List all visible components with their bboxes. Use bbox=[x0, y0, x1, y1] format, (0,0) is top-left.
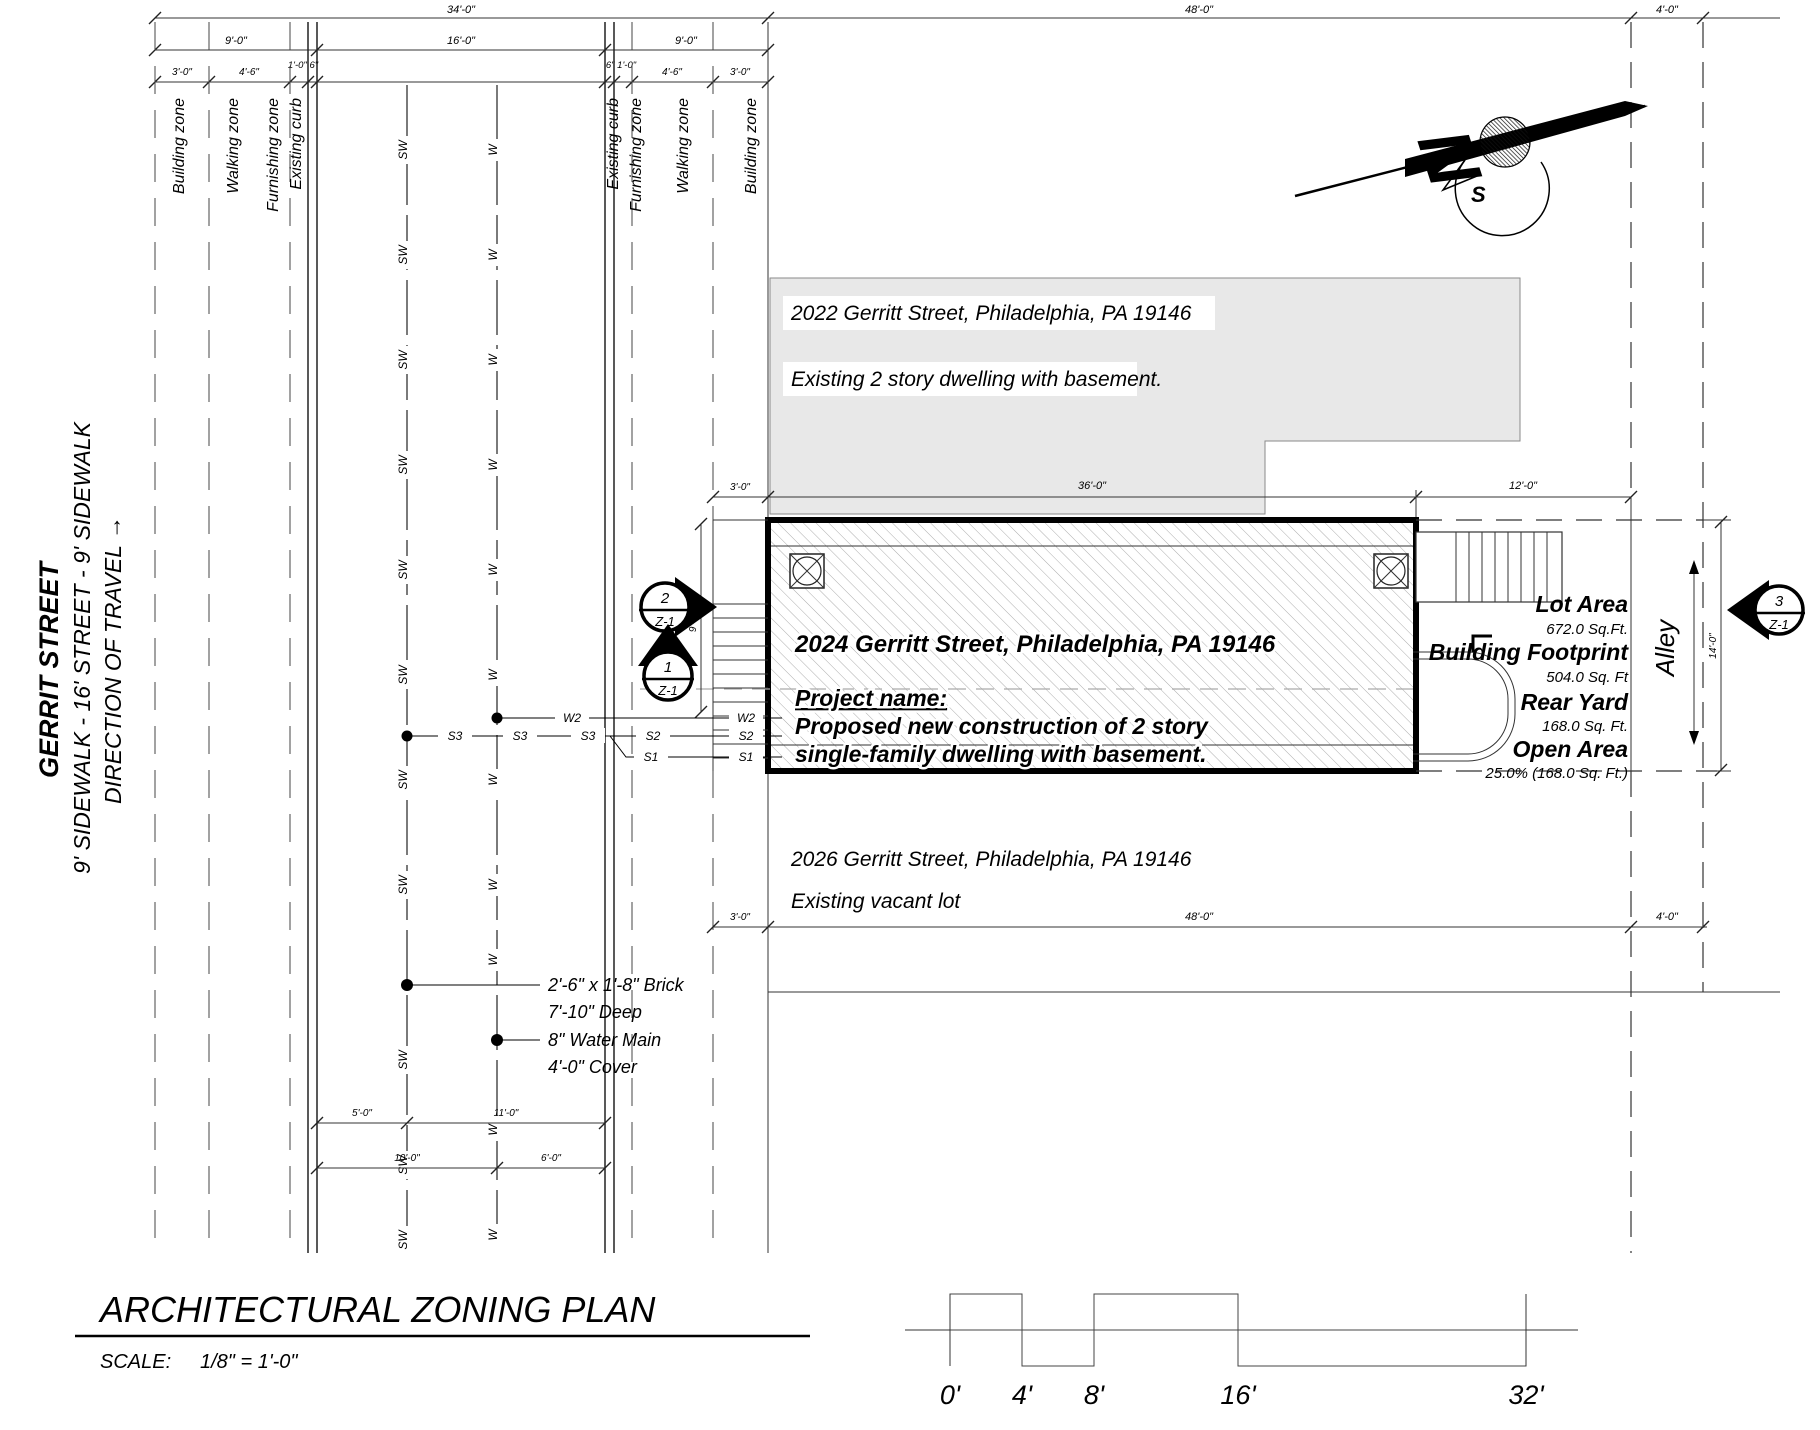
alley-label: Alley bbox=[1650, 618, 1680, 678]
zoning-plan-sheet: 34'-0" 48'-0" 4'-0" 9'-0" 16'-0" 9'-0" 3… bbox=[0, 0, 1820, 1430]
zone-label-furnishing-left: Furnishing zone bbox=[265, 98, 282, 212]
w2-label: W2 bbox=[563, 711, 581, 725]
brick-note-line2: 7'-10" Deep bbox=[548, 1002, 642, 1022]
dim-left-sidewalk: 9'-0" bbox=[225, 35, 248, 47]
water-note-line1: 8" Water Main bbox=[548, 1030, 661, 1050]
address-2022: 2022 Gerritt Street, Philadelphia, PA 19… bbox=[790, 302, 1192, 325]
scale-tick-label: 0' bbox=[940, 1380, 961, 1410]
dim-sw-to-curb: 11'-0" bbox=[494, 1108, 519, 1119]
address-2024: 2024 Gerritt Street, Philadelphia, PA 19… bbox=[794, 631, 1276, 658]
stat-value: 25.0% (168.0 Sq. Ft.) bbox=[1484, 765, 1628, 782]
column-marker-left bbox=[790, 554, 824, 588]
sewer-line: SW SW SW SW SW SW SW SW SW SW SW bbox=[396, 85, 410, 1254]
sewer-label: SW bbox=[396, 874, 410, 895]
sewer-label: SW bbox=[396, 559, 410, 580]
s1-label: S1 bbox=[644, 750, 659, 764]
arrow-down-icon bbox=[1689, 731, 1699, 745]
utility-laterals: W2 W2 S3 S3 S3 S2 S2 S1 S1 bbox=[402, 710, 783, 764]
dim-overall-lot: 48'-0" bbox=[1185, 4, 1214, 16]
project-line-1: Proposed new construction of 2 story bbox=[795, 713, 1209, 739]
dim-r-building-zone: 3'-0" bbox=[730, 67, 750, 78]
sewer-label: SW bbox=[396, 349, 410, 370]
sewer-label: SW bbox=[396, 1049, 410, 1070]
street-title: GERRIT STREET 9' SIDEWALK - 16' STREET -… bbox=[34, 420, 126, 874]
scale-tick-label: 8' bbox=[1084, 1380, 1105, 1410]
brick-sewer-note: 2'-6" x 1'-8" Brick 7'-10" Deep bbox=[401, 975, 685, 1022]
s3-label: S3 bbox=[581, 729, 596, 743]
brick-note-line1: 2'-6" x 1'-8" Brick bbox=[547, 975, 685, 995]
arrow-up-icon bbox=[1689, 560, 1699, 574]
direction-of-travel: DIRECTION OF TRAVEL → bbox=[100, 516, 126, 804]
zone-label-furnishing-right: Furnishing zone bbox=[628, 98, 645, 212]
callout-1-z1: 1 Z-1 bbox=[638, 624, 698, 700]
dim-w-to-curb: 6'-0" bbox=[541, 1153, 561, 1164]
s3-label: S3 bbox=[448, 729, 463, 743]
dim-alley-depth: 14'-0" bbox=[1708, 633, 1719, 659]
sewer-label: SW bbox=[396, 769, 410, 790]
water-note-line2: 4'-0" Cover bbox=[548, 1057, 638, 1077]
column-marker-right bbox=[1374, 554, 1408, 588]
scale-segment bbox=[1094, 1294, 1238, 1330]
street-subtitle: 9' SIDEWALK - 16' STREET - 9' SIDEWALK bbox=[69, 420, 95, 874]
dim-lot-width: 48'-0" bbox=[1185, 911, 1214, 923]
dim-alley-width: 4'-0" bbox=[1656, 4, 1679, 16]
water-label: W bbox=[486, 668, 500, 681]
water-label: W bbox=[486, 953, 500, 966]
dim-l-building-zone: 3'-0" bbox=[172, 67, 192, 78]
utility-offset-dims-row2: 10'-0" 6'-0" bbox=[311, 1153, 611, 1174]
zone-label-building-left: Building zone bbox=[171, 98, 188, 194]
scale-segment bbox=[950, 1294, 1022, 1330]
project-line-2: single-family dwelling with basement. bbox=[795, 741, 1207, 767]
lot-2026-vacant: 2026 Gerritt Street, Philadelphia, PA 19… bbox=[707, 848, 1709, 933]
dim-building-width: 36'-0" bbox=[1078, 480, 1107, 492]
zone-label-building-right: Building zone bbox=[743, 98, 760, 194]
stat-value: 168.0 Sq. Ft. bbox=[1542, 718, 1628, 735]
stat-label: Open Area bbox=[1513, 736, 1629, 762]
alley-label-group: Alley bbox=[1650, 560, 1699, 745]
zone-label-curb-left: Existing curb bbox=[288, 98, 305, 190]
graphic-scale-bar: 0' 4' 8' 16' 32' bbox=[905, 1294, 1578, 1410]
sewer-label: SW bbox=[396, 139, 410, 160]
zoning-stats: Lot Area 672.0 Sq.Ft. Building Footprint… bbox=[1429, 591, 1630, 782]
dim-street: 16'-0" bbox=[447, 35, 476, 47]
s1-label: S1 bbox=[739, 750, 754, 764]
stat-value: 504.0 Sq. Ft bbox=[1546, 669, 1629, 686]
stat-label: Lot Area bbox=[1536, 591, 1629, 617]
dim-lot-alley: 4'-0" bbox=[1656, 911, 1679, 923]
callout-sheet: Z-1 bbox=[1768, 617, 1789, 632]
desc-2022: Existing 2 story dwelling with basement. bbox=[791, 368, 1162, 391]
zone-dimension-row: 3'-0" 4'-6" 1'-0" 6" 6" 1'-0" 4'-6" 3'-0… bbox=[149, 60, 774, 88]
project-name-label: Project name: bbox=[795, 685, 947, 711]
water-label: W bbox=[486, 563, 500, 576]
dim-side-setback: 3'-0" bbox=[730, 482, 750, 493]
callout-3-z1: 3 Z-1 bbox=[1727, 580, 1805, 640]
dim-rear-yard-width: 12'-0" bbox=[1509, 480, 1538, 492]
alley-depth-dim: 14'-0" bbox=[1708, 516, 1727, 776]
sewer-label: SW bbox=[396, 664, 410, 685]
scale-tick-label: 32' bbox=[1508, 1380, 1544, 1410]
zone-label-walking-left: Walking zone bbox=[225, 98, 242, 194]
callout-2-z1: 2 Z-1 bbox=[639, 577, 717, 637]
water-line: W W W W W W W W W W W bbox=[486, 85, 500, 1253]
zone-label-walking-right: Walking zone bbox=[675, 98, 692, 194]
dim-overall-street: 34'-0" bbox=[447, 4, 476, 16]
utility-offset-dims-row1: 5'-0" 11'-0" bbox=[311, 1108, 611, 1129]
scale-tick-label: 4' bbox=[1012, 1380, 1033, 1410]
dim-sw-offset: 5'-0" bbox=[352, 1108, 372, 1119]
desc-2026: Existing vacant lot bbox=[791, 890, 961, 913]
water-label: W bbox=[486, 773, 500, 786]
lot-2022-existing-dwelling: 2022 Gerritt Street, Philadelphia, PA 19… bbox=[770, 278, 1520, 514]
stat-value: 672.0 Sq.Ft. bbox=[1546, 621, 1628, 638]
water-label: W bbox=[486, 353, 500, 366]
s2-label: S2 bbox=[646, 729, 661, 743]
scale-value: 1/8" = 1'-0" bbox=[200, 1351, 298, 1373]
dim-l-curb: 1'-0" 6" bbox=[288, 60, 319, 71]
scale-segment bbox=[1022, 1330, 1094, 1366]
sidewalk-street-dimension-row: 9'-0" 16'-0" 9'-0" bbox=[149, 35, 774, 56]
s3-labels: S3 S3 S3 bbox=[438, 728, 605, 743]
dim-w-offset: 10'-0" bbox=[394, 1153, 420, 1164]
dim-r-walking-zone: 4'-6" bbox=[662, 67, 682, 78]
water-label: W bbox=[486, 458, 500, 471]
dim-right-sidewalk: 9'-0" bbox=[675, 35, 698, 47]
top-dimension-row: 34'-0" 48'-0" 4'-0" bbox=[149, 4, 1780, 24]
water-label: W bbox=[486, 248, 500, 261]
zoning-plan-canvas: 34'-0" 48'-0" 4'-0" 9'-0" 16'-0" 9'-0" 3… bbox=[0, 0, 1820, 1430]
scale-label: SCALE: bbox=[100, 1351, 171, 1373]
water-label: W bbox=[486, 1228, 500, 1241]
dim-lot-setback: 3'-0" bbox=[730, 912, 750, 923]
address-2026: 2026 Gerritt Street, Philadelphia, PA 19… bbox=[790, 848, 1192, 871]
zone-label-curb-right: Existing curb bbox=[605, 98, 622, 190]
callout-number: 1 bbox=[664, 659, 672, 676]
water-label: W bbox=[486, 1123, 500, 1136]
callout-number: 3 bbox=[1775, 593, 1784, 610]
water-label: W bbox=[486, 878, 500, 891]
street-name: GERRIT STREET bbox=[34, 559, 64, 778]
drawing-title: ARCHITECTURAL ZONING PLAN bbox=[98, 1289, 656, 1330]
callout-sheet: Z-1 bbox=[657, 683, 678, 698]
water-main-note: 8" Water Main 4'-0" Cover bbox=[491, 1030, 661, 1077]
callout-number: 2 bbox=[660, 590, 670, 607]
dim-l-walking-zone: 4'-6" bbox=[239, 67, 259, 78]
stat-label: Rear Yard bbox=[1521, 689, 1629, 715]
title-block: ARCHITECTURAL ZONING PLAN SCALE: 1/8" = … bbox=[75, 1289, 810, 1373]
water-label: W bbox=[486, 143, 500, 156]
s3-label: S3 bbox=[513, 729, 528, 743]
zone-labels: Building zone Walking zone Furnishing zo… bbox=[171, 98, 760, 212]
stat-label: Building Footprint bbox=[1429, 639, 1630, 665]
south-letter: S bbox=[1471, 182, 1486, 207]
sewer-label: SW bbox=[396, 454, 410, 475]
s2-label: S2 bbox=[739, 729, 754, 743]
callout-sheet: Z-1 bbox=[654, 614, 675, 629]
north-arrow: N S bbox=[1295, 101, 1648, 236]
w2-label: W2 bbox=[737, 711, 755, 725]
sewer-label: SW bbox=[396, 1229, 410, 1250]
scale-segment bbox=[1238, 1330, 1526, 1366]
scale-tick-label: 16' bbox=[1220, 1380, 1256, 1410]
sewer-label: SW bbox=[396, 244, 410, 265]
